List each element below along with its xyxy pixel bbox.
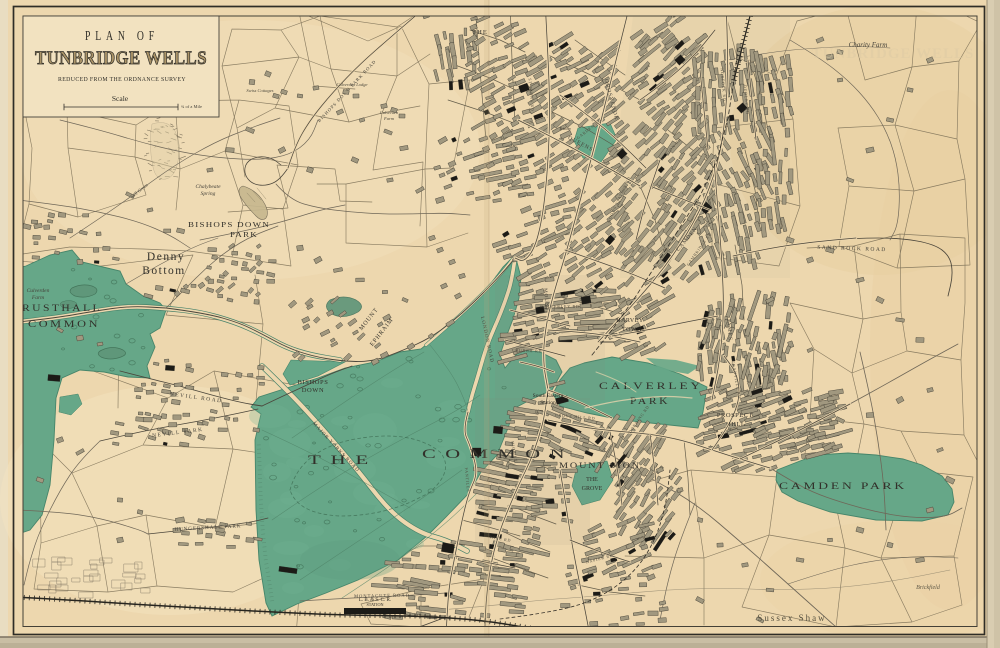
svg-text:Culverden Lodge: Culverden Lodge: [337, 82, 368, 87]
svg-text:¾ of a Mile: ¾ of a Mile: [181, 104, 202, 109]
svg-text:TUNBRIDGE WELLS: TUNBRIDGE WELLS: [812, 46, 975, 62]
svg-text:BISHOPS DOWN: BISHOPS DOWN: [188, 221, 270, 229]
svg-text:Station: Station: [540, 400, 556, 406]
svg-text:TUNBRIDGE WELLS: TUNBRIDGE WELLS: [35, 49, 207, 69]
svg-text:HARVEY: HARVEY: [616, 318, 644, 324]
svg-text:Culverden: Culverden: [27, 288, 50, 294]
svg-text:CALVERLEY RD: CALVERLEY RD: [540, 304, 579, 309]
svg-text:COMMON: COMMON: [422, 446, 574, 461]
svg-text:Brickfield: Brickfield: [916, 584, 941, 591]
svg-text:GROVE: GROVE: [582, 486, 603, 492]
svg-text:MOUNT SION: MOUNT SION: [559, 461, 641, 470]
svg-text:PROSPECT: PROSPECT: [717, 412, 753, 419]
svg-text:REDUCED FROM THE ORDNANCE SURV: REDUCED FROM THE ORDNANCE SURVEY: [58, 76, 186, 83]
svg-text:TOWN: TOWN: [622, 327, 642, 333]
svg-text:HILL: HILL: [729, 421, 746, 428]
svg-text:THE: THE: [586, 477, 598, 483]
svg-text:Swiss Cottages: Swiss Cottages: [246, 88, 273, 93]
svg-text:Farm: Farm: [31, 295, 44, 301]
svg-text:Denny: Denny: [147, 251, 185, 263]
svg-text:CHURCH RD: CHURCH RD: [512, 347, 543, 353]
svg-text:CALVERLEY: CALVERLEY: [599, 381, 703, 391]
svg-text:Trinity: Trinity: [559, 126, 571, 131]
svg-text:STATION: STATION: [366, 602, 383, 607]
svg-text:MONTACUTE ROAD: MONTACUTE ROAD: [354, 593, 410, 599]
svg-text:RUSTHALL: RUSTHALL: [22, 304, 102, 314]
svg-text:BISHOPS: BISHOPS: [298, 379, 329, 386]
svg-text:COMMON: COMMON: [28, 320, 100, 330]
svg-text:Chalybeate: Chalybeate: [195, 184, 221, 190]
svg-text:CAMDEN PARK: CAMDEN PARK: [779, 482, 907, 492]
svg-text:PLAN OF: PLAN OF: [85, 29, 159, 44]
svg-text:Farm: Farm: [383, 116, 395, 121]
svg-text:PARK: PARK: [230, 231, 258, 239]
svg-text:Sussex Shaw: Sussex Shaw: [757, 613, 826, 623]
svg-text:Scale: Scale: [112, 94, 129, 103]
svg-text:Spring: Spring: [201, 191, 216, 197]
svg-text:Bottom: Bottom: [142, 265, 186, 277]
svg-text:South Eastern: South Eastern: [533, 393, 564, 399]
svg-text:DOWN: DOWN: [302, 387, 325, 394]
